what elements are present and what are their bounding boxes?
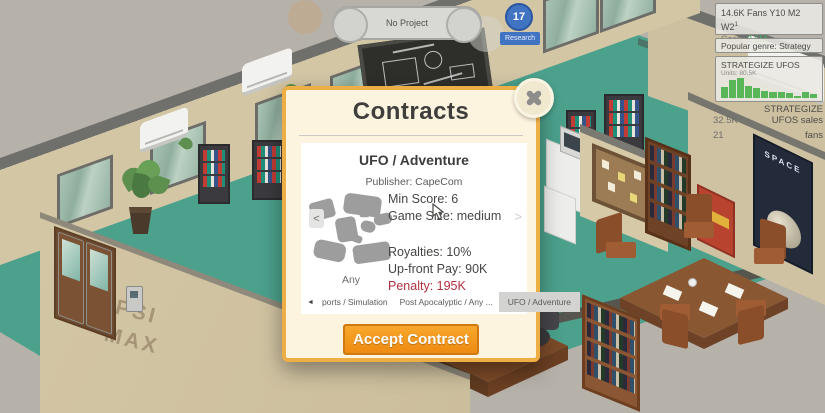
sales-summary: 32.5K STRATEGIZE UFOS sales 21 fans (713, 104, 823, 145)
upfront-pay: Up-front Pay: 90K (388, 261, 487, 278)
tab-post-apocalyptic[interactable]: Post Apocalyptic / Any ... (394, 292, 499, 312)
dialog-title: Contracts (286, 98, 536, 126)
carousel-next-button[interactable]: > (514, 209, 522, 224)
carousel-prev-button[interactable]: < (309, 209, 324, 228)
window (57, 154, 113, 228)
mouse-cursor (431, 203, 447, 221)
research-points-badge[interactable]: 17 (505, 3, 533, 31)
window (600, 0, 656, 33)
summary-row: 32.5K STRATEGIZE UFOS sales (713, 104, 823, 126)
project-status-bar[interactable]: No Project (332, 6, 482, 40)
tab-sports-simulation[interactable]: ports / Simulation (316, 292, 394, 312)
window (543, 0, 599, 54)
contract-name: UFO / Adventure (301, 152, 527, 168)
summary-row: 21 fans (713, 130, 823, 141)
close-icon[interactable] (514, 78, 554, 118)
accept-contract-button[interactable]: Accept Contract (343, 324, 479, 355)
stats-panel: 14.6K Fans Y10 M2 W21 Cash: 2.6M (715, 3, 823, 35)
vending-shelf (252, 140, 286, 200)
sales-panel-title: STRATEGIZE UFOS (721, 60, 817, 70)
contract-publisher: Publisher: CapeCom (301, 176, 527, 188)
project-status-label: No Project (386, 18, 428, 28)
fans-line: 14.6K Fans Y10 M2 W21 (721, 7, 817, 33)
contract-tabs: ◄ ports / Simulation Post Apocalyptic / … (301, 292, 527, 312)
divider (299, 135, 523, 136)
cup (688, 278, 697, 287)
wall-switch (126, 286, 143, 312)
tab-ufo-adventure[interactable]: UFO / Adventure (499, 292, 580, 312)
sales-units: Units: 80.5K (721, 70, 817, 77)
contract-terms: Royalties: 10% Up-front Pay: 90K Penalty… (388, 244, 487, 295)
research-label: Research (500, 32, 540, 45)
contract-card: UFO / Adventure Publisher: CapeCom < > A… (301, 143, 527, 314)
tabs-prev-arrow-icon[interactable]: ◄ (301, 299, 316, 306)
character-ghost (288, 0, 322, 34)
vending-shelf (198, 144, 230, 204)
royalties: Royalties: 10% (388, 244, 487, 261)
contracts-dialog: Contracts UFO / Adventure Publisher: Cap… (282, 86, 540, 362)
platform-label: Any (301, 274, 401, 286)
game-screen: SPACE (0, 0, 825, 413)
sales-panel: STRATEGIZE UFOS Units: 80.5K (715, 56, 823, 102)
sales-chart (721, 78, 817, 98)
popular-genre-panel: Popular genre: Strategy (715, 38, 823, 53)
